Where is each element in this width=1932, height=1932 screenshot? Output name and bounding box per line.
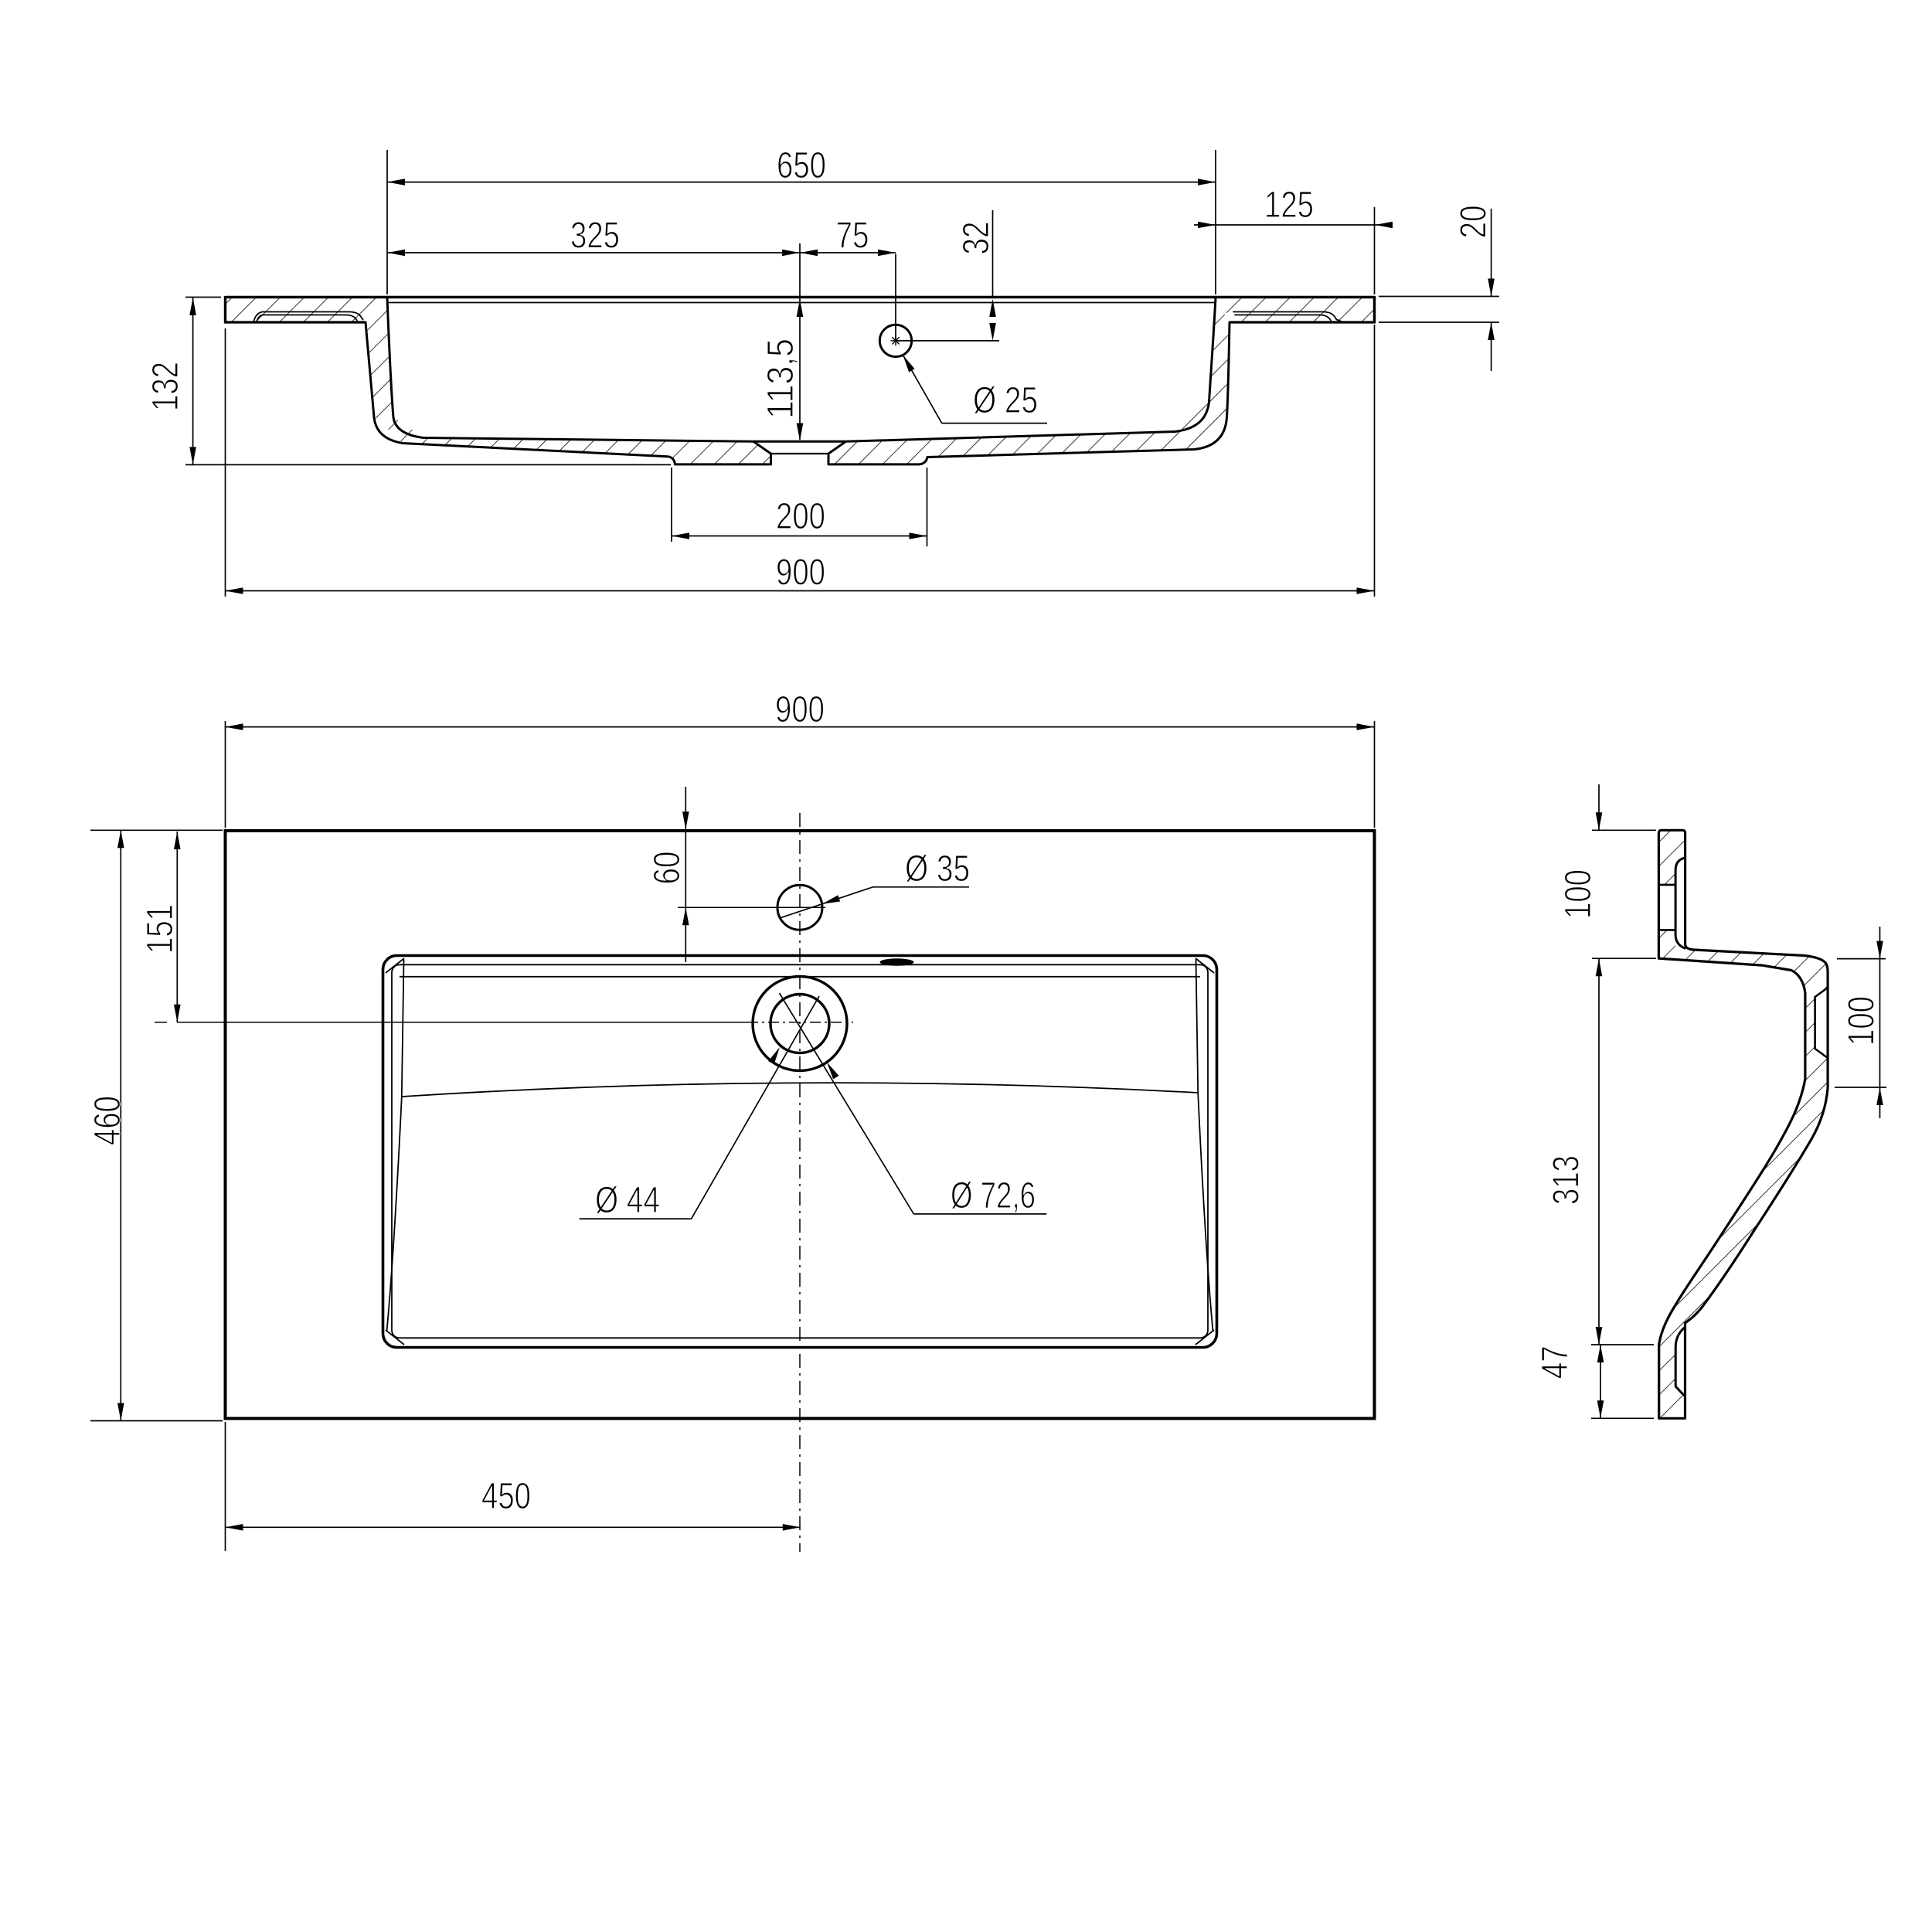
svg-text:200: 200 xyxy=(776,496,825,537)
svg-text:313: 313 xyxy=(1546,1155,1587,1205)
svg-text:113,5: 113,5 xyxy=(760,338,801,419)
svg-text:151: 151 xyxy=(140,904,181,954)
svg-text:47: 47 xyxy=(1535,1345,1576,1379)
svg-text:325: 325 xyxy=(570,216,620,257)
svg-text:Ø 35: Ø 35 xyxy=(905,849,970,889)
svg-text:900: 900 xyxy=(775,689,825,730)
svg-text:460: 460 xyxy=(87,1096,128,1145)
svg-text:Ø 25: Ø 25 xyxy=(973,380,1038,421)
svg-text:75: 75 xyxy=(836,216,869,257)
svg-text:125: 125 xyxy=(1264,185,1314,226)
svg-text:60: 60 xyxy=(647,852,688,885)
svg-text:Ø 44: Ø 44 xyxy=(595,1180,660,1221)
svg-text:100: 100 xyxy=(1842,996,1883,1046)
svg-text:100: 100 xyxy=(1558,869,1599,919)
svg-text:132: 132 xyxy=(145,362,186,411)
svg-text:32: 32 xyxy=(956,222,997,255)
svg-text:20: 20 xyxy=(1454,206,1495,239)
svg-text:Ø 72,6: Ø 72,6 xyxy=(951,1175,1036,1216)
svg-text:450: 450 xyxy=(481,1476,531,1517)
svg-text:900: 900 xyxy=(776,553,825,594)
svg-text:650: 650 xyxy=(777,145,826,186)
